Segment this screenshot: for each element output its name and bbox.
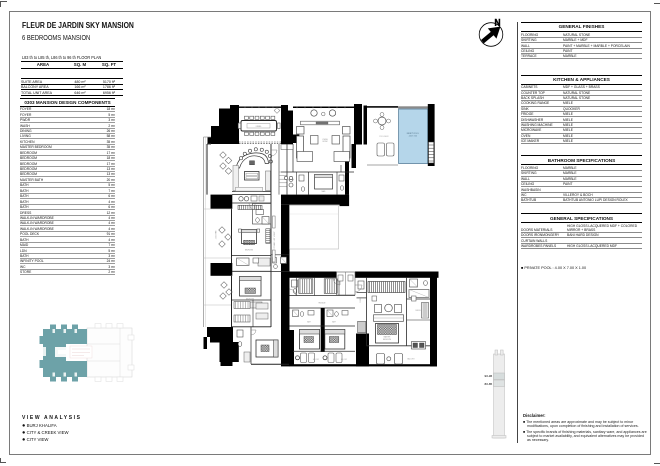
svg-text:BALCONY: BALCONY bbox=[407, 358, 414, 361]
svg-text:ROOM: ROOM bbox=[323, 141, 328, 143]
svg-text:PASSAGE: PASSAGE bbox=[318, 302, 325, 305]
svg-text:BALCONY: BALCONY bbox=[214, 231, 217, 240]
svg-text:BEDROOM: BEDROOM bbox=[262, 349, 271, 351]
svg-text:POOL DECK: POOL DECK bbox=[379, 136, 389, 138]
svg-text:DINING: DINING bbox=[256, 126, 262, 128]
svg-text:FOYER: FOYER bbox=[360, 297, 362, 303]
svg-text:BEDROOM: BEDROOM bbox=[383, 339, 392, 341]
svg-text:BATH: BATH bbox=[307, 321, 311, 324]
svg-text:BEDROOM: BEDROOM bbox=[245, 250, 254, 252]
svg-text:INFINITY POOL: INFINITY POOL bbox=[407, 133, 419, 135]
svg-text:PRIVATE LIFT LOBBY: PRIVATE LIFT LOBBY bbox=[273, 231, 276, 249]
svg-text:MAID: MAID bbox=[322, 190, 327, 193]
svg-text:DRESS: DRESS bbox=[415, 310, 420, 312]
svg-text:BATH: BATH bbox=[332, 321, 336, 324]
svg-text:LIVING: LIVING bbox=[322, 139, 328, 141]
svg-text:4.00 X 7.00: 4.00 X 7.00 bbox=[409, 136, 417, 138]
